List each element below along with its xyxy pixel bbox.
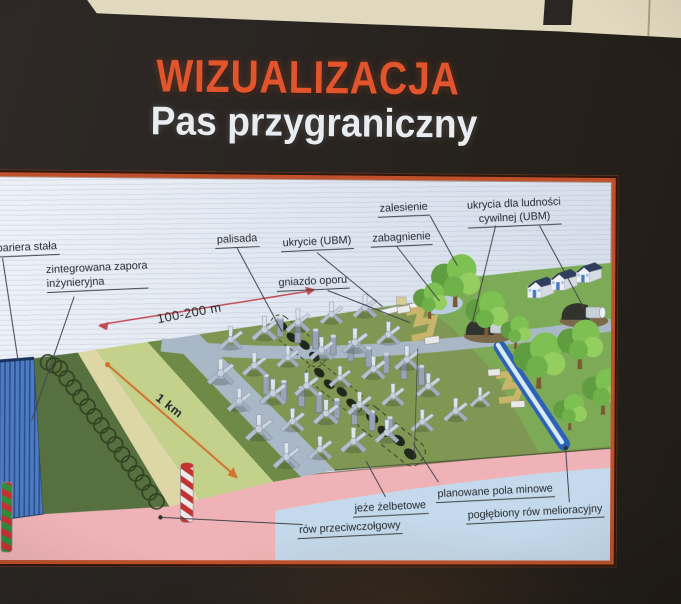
label-afforestation: zalesienie <box>377 201 430 218</box>
border-zone-illustration <box>0 176 612 561</box>
wall-notch <box>543 0 573 25</box>
photo-of-presentation-slide: WIZUALIZACJA Pas przygraniczny <box>0 0 681 604</box>
leader-dot <box>564 446 568 450</box>
label-palisade: palisada <box>215 232 260 249</box>
slide-subtitle: Pas przygraniczny <box>150 99 477 147</box>
label-swamping: zabagnienie <box>370 230 433 248</box>
label-permanent-barrier: bariera stała <box>0 240 59 258</box>
border-marker-poland <box>180 463 193 523</box>
label-civilian-shelters: ukrycia dla ludności cywilnej (UBM) <box>467 195 562 229</box>
leader-dot <box>158 515 162 519</box>
slide-title: WIZUALIZACJA <box>156 48 460 105</box>
label-integrated-engineering-barrier: zintegrowana zapora inżynieryjna <box>46 259 149 293</box>
diagram-panel: bariera stała zintegrowana zapora inżyni… <box>0 172 616 565</box>
border-marker-belarus <box>1 482 12 552</box>
